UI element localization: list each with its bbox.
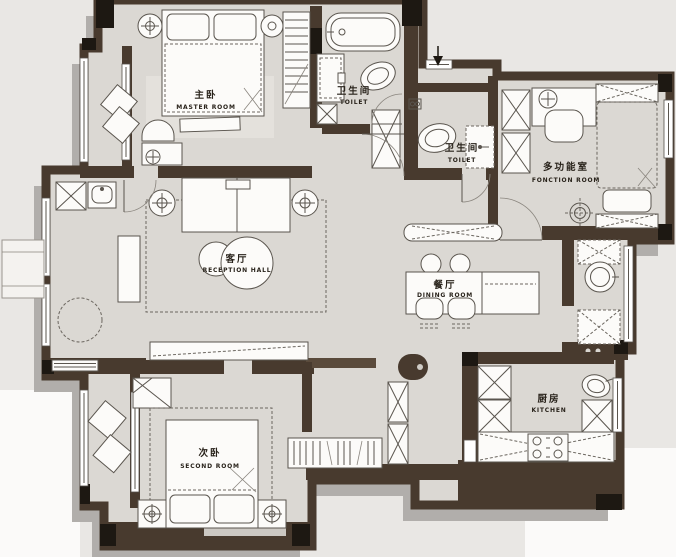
bookshelf: [288, 438, 382, 468]
laundry-west-wall: [562, 240, 574, 306]
kitchen-pocket-door: [464, 440, 476, 462]
column: [658, 224, 672, 240]
window-bench: [52, 360, 98, 371]
kitchen-counter-right: [582, 400, 612, 432]
dining-island: [482, 272, 539, 314]
label-toilet-mid-zh: 卫生间: [445, 142, 480, 154]
kitchen-north-wall: [462, 352, 614, 364]
bathtub: [326, 13, 400, 51]
label-kitchen-en: KITCHEN: [531, 407, 566, 414]
laundry-cabinet-bottom: [578, 310, 620, 344]
balcony-south-wall: [80, 166, 134, 178]
laundry-cabinet-top: [578, 240, 620, 264]
label-second-en: SECOND ROOM: [180, 463, 240, 470]
sofa: [182, 178, 290, 232]
second-nightstand-left: [138, 500, 166, 528]
ac-outdoor-unit: [2, 240, 44, 298]
master-nightstand-right: [261, 15, 283, 37]
second-nightstand-right: [258, 500, 286, 528]
column: [96, 0, 114, 28]
balcony-bottom-window: [80, 390, 88, 486]
column: [658, 74, 672, 92]
column: [402, 0, 422, 26]
floor-plan-drawing: 主卧 MASTER ROOM 卫生间 TOILET 卫生间 TOILET 多功能…: [0, 0, 676, 557]
bed-end-bench: [180, 117, 240, 132]
second-wardrobe: [133, 378, 171, 408]
toilet-mid-north-wall: [404, 83, 498, 92]
tv-cabinet-side: [118, 236, 140, 302]
pillow: [214, 14, 256, 40]
master-nightstand-left: [138, 14, 162, 38]
corridor-north-beam: [306, 358, 376, 368]
dining-stool: [450, 254, 470, 274]
tv-console: [150, 342, 308, 360]
stove: [528, 434, 568, 461]
pillow: [603, 190, 651, 212]
column: [80, 484, 90, 504]
kitchen-window: [613, 378, 622, 432]
label-function-zh: 多功能室: [543, 161, 589, 173]
second-bed: [166, 420, 258, 528]
floor-plan-canvas: 主卧 MASTER ROOM 卫生间 TOILET 卫生间 TOILET 多功能…: [0, 0, 676, 557]
label-function-en: FONCTION ROOM: [532, 177, 600, 184]
balcony-top-window: [80, 58, 88, 162]
vanity-sink: [88, 182, 116, 208]
hall-storage-cabinet: [372, 110, 400, 168]
column: [596, 494, 622, 510]
pillow: [167, 14, 209, 40]
second-room-north-wall-left: [140, 360, 224, 374]
pillow: [170, 495, 210, 523]
column: [292, 524, 310, 546]
label-dining-en: DINING ROOM: [417, 292, 473, 299]
label-reception-en: RECEPTION HALL: [203, 267, 272, 274]
toilet-top-south-wall: [322, 124, 370, 134]
pillow: [214, 495, 254, 523]
label-toilet-top-en: TOILET: [340, 99, 368, 106]
desk-chair: [545, 110, 583, 142]
wall-cap-hinge-dot: [417, 364, 423, 370]
laundry-window: [624, 246, 633, 342]
label-toilet-mid-en: TOILET: [448, 157, 476, 164]
column: [82, 38, 96, 50]
label-dining-zh: 餐厅: [432, 279, 456, 291]
kitchen-counter-left: [478, 366, 511, 433]
side-table-right: [292, 190, 318, 216]
shoe-console: [404, 224, 502, 241]
label-second-zh: 次卧: [198, 447, 221, 459]
label-kitchen-zh: 厨房: [537, 393, 560, 405]
bathroom-storage-box: [317, 104, 337, 124]
corridor-wall-cap: [398, 354, 428, 380]
dining-stool: [421, 254, 441, 274]
label-master-zh: 主卧: [194, 89, 217, 101]
sofa-headrest: [226, 180, 250, 189]
second-room-east-wall: [302, 362, 312, 432]
master-south-wall: [158, 166, 312, 178]
column: [100, 524, 116, 546]
label-master-en: MASTER ROOM: [176, 104, 235, 111]
label-reception-zh: 客厅: [224, 253, 248, 265]
function-room-window: [664, 100, 673, 158]
column: [462, 352, 478, 366]
master-wardrobe: [283, 12, 310, 108]
label-toilet-top-zh: 卫生间: [337, 85, 372, 97]
toilet-mid-south-wall: [404, 168, 462, 180]
vanity-cabinet: [56, 182, 86, 210]
